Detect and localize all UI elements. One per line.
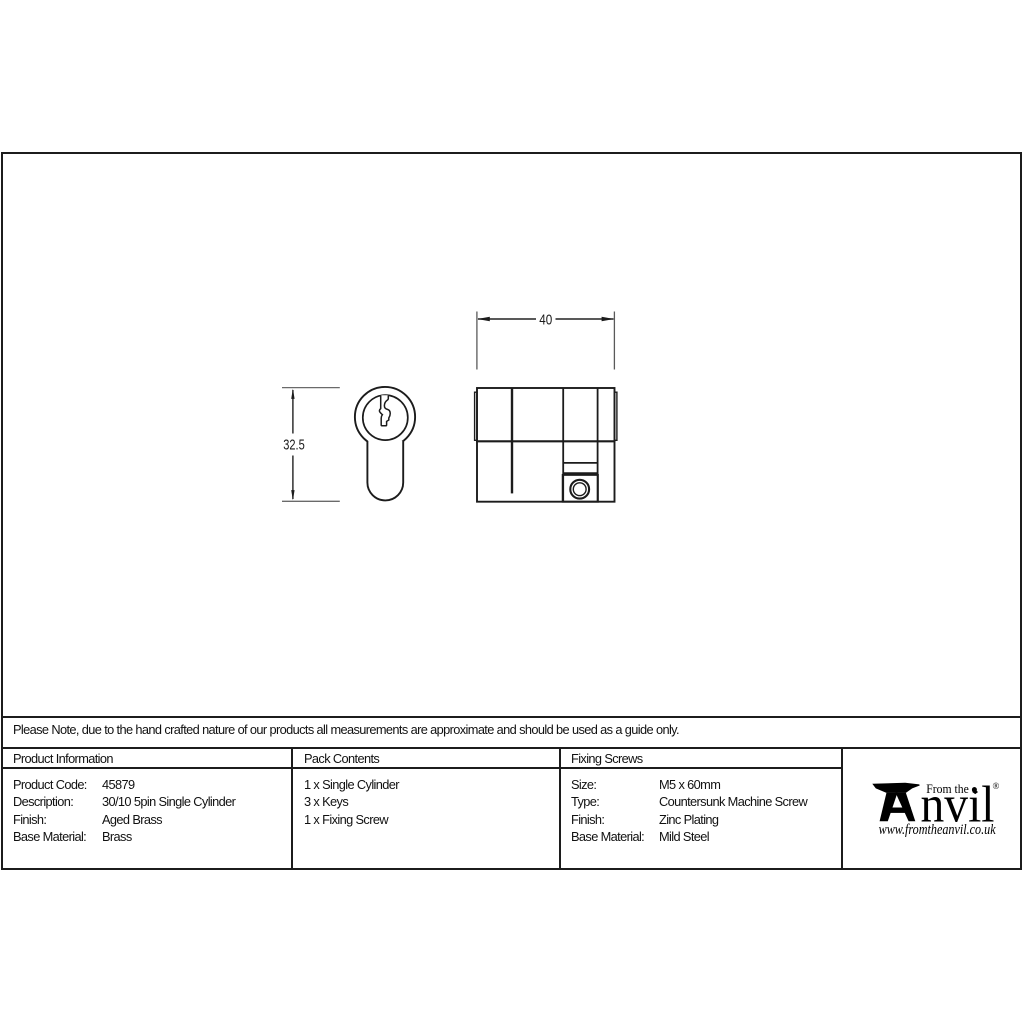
svg-text:®: ® — [993, 781, 1000, 791]
svg-text:40: 40 — [539, 312, 552, 329]
svg-text:32.5: 32.5 — [283, 436, 305, 453]
svg-text:www.fromtheanvil.co.uk: www.fromtheanvil.co.uk — [879, 822, 996, 838]
